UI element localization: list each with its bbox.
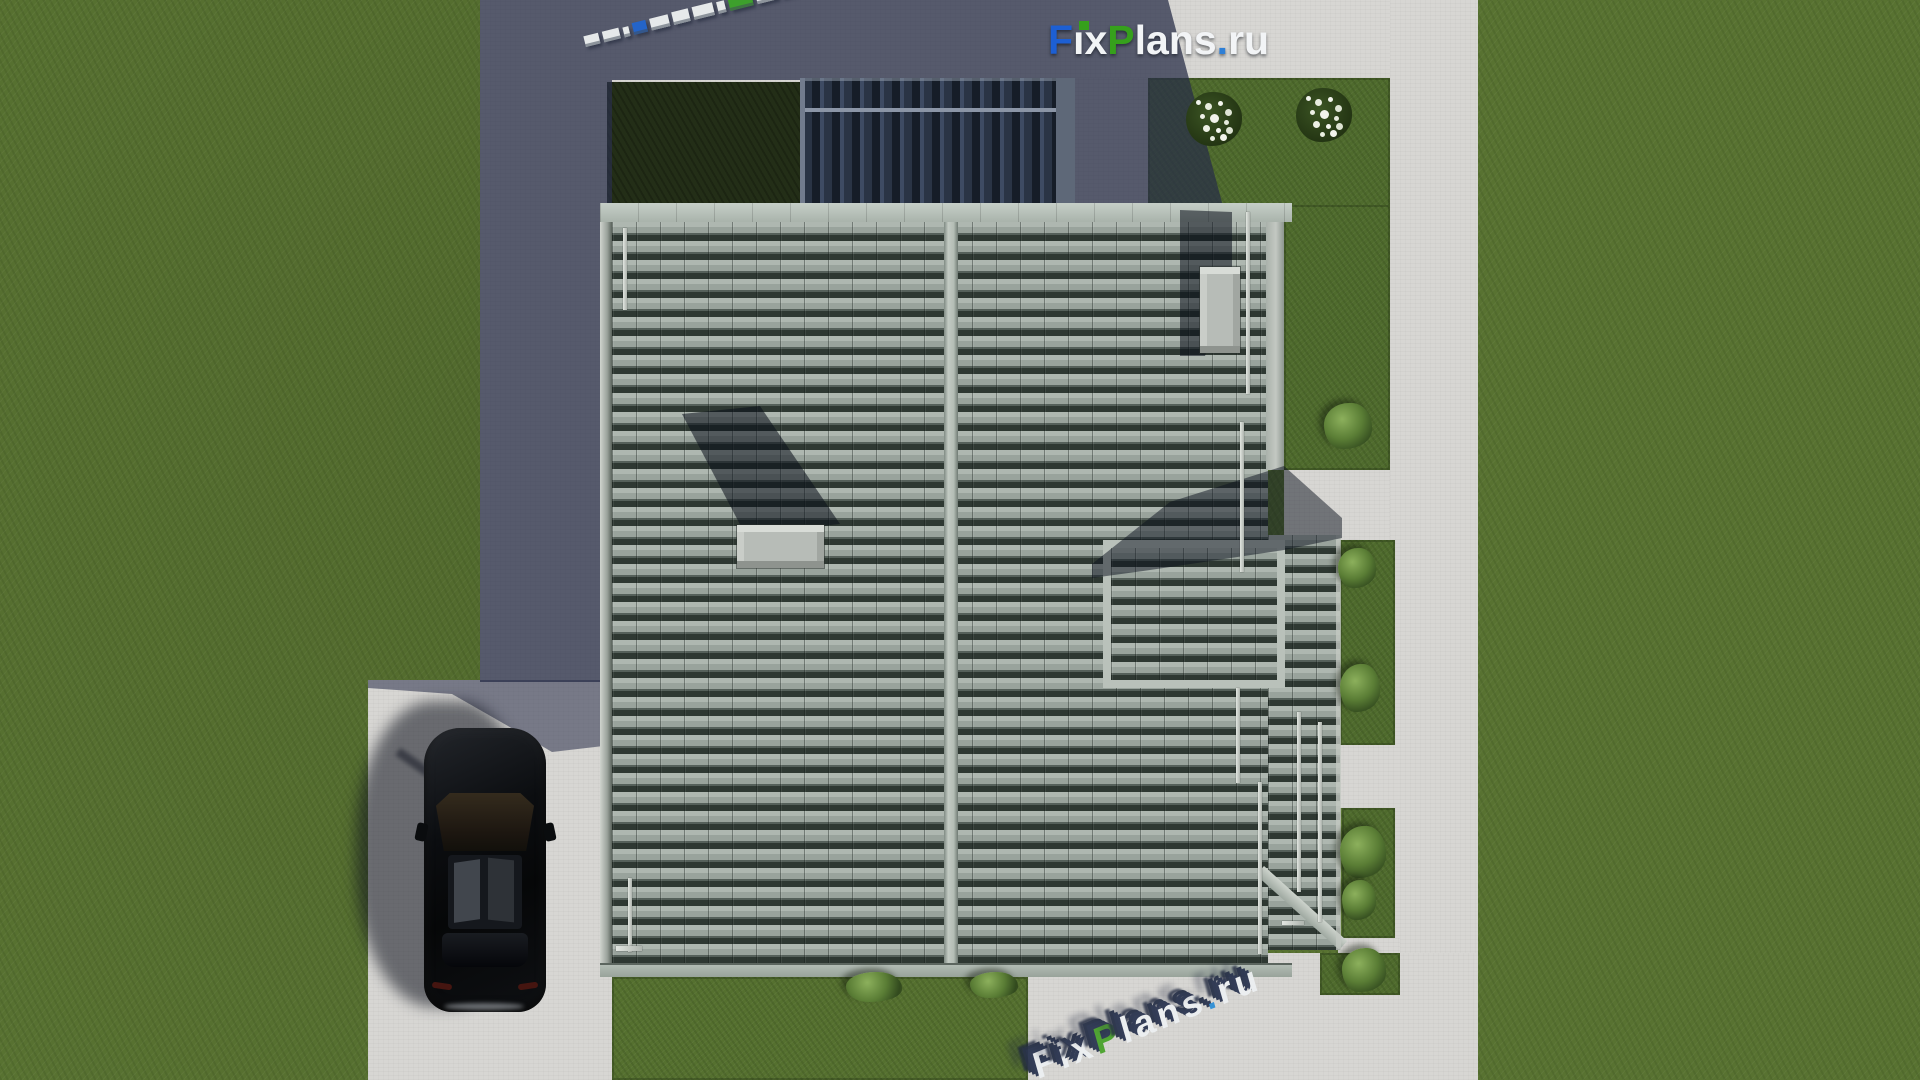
roof-top-ridge-cap [600, 203, 1292, 222]
green-bush-3 [1340, 664, 1380, 712]
car-mirror-right [542, 822, 557, 842]
parked-car [360, 695, 560, 1025]
car-windshield [436, 793, 534, 851]
green-bush-2 [1338, 548, 1376, 588]
car-front-glint [444, 1003, 524, 1010]
shaded-courtyard-grass [607, 80, 802, 207]
snow-pipe-5 [1236, 688, 1240, 783]
roof-right-trim [1266, 222, 1284, 470]
roof-center-ridge [944, 222, 958, 963]
letter-block [716, 0, 726, 13]
car-roof-glass [448, 855, 522, 929]
clerestory-right-wall [1056, 78, 1075, 205]
green-bush-6 [1342, 948, 1386, 992]
green-bush-7 [846, 972, 902, 1002]
snow-pipe-1 [628, 878, 632, 952]
text-segment: F [1048, 17, 1073, 63]
letter-block [623, 26, 631, 37]
car-taillight-right [518, 982, 539, 991]
green-bush-1 [1324, 403, 1372, 449]
text-segment: ru [1228, 17, 1269, 63]
garden-bed-top-right [1148, 78, 1390, 208]
car-body [424, 728, 546, 1012]
clerestory-left-rim [800, 78, 805, 205]
logo-i-dot [1079, 21, 1089, 30]
clerestory-roof [800, 78, 1075, 205]
text-segment: . [1217, 17, 1228, 63]
concrete-walkway-middle [1338, 745, 1397, 808]
green-bush-4 [1340, 826, 1386, 878]
car-taillight-left [432, 982, 453, 991]
concrete-strip-north-east [1068, 78, 1150, 208]
roof-left-gutter [600, 222, 612, 963]
car-roof-reflection-1 [454, 859, 480, 923]
text-segment: P [1107, 17, 1134, 63]
roof-bottom-gutter [600, 963, 1292, 977]
green-bush-5 [1342, 880, 1376, 920]
snow-pipe-9 [1282, 921, 1304, 925]
text-segment: lans [1135, 17, 1217, 63]
skylight-left [737, 525, 824, 568]
snow-pipe-7 [1297, 712, 1301, 892]
snow-pipe-8 [1318, 722, 1322, 922]
snow-pipe-2 [623, 228, 627, 310]
car-roof-reflection-2 [488, 858, 514, 923]
snow-pipe-4 [1240, 422, 1244, 572]
clerestory-mid-flashing [802, 108, 1073, 112]
parapet-roof-section [1103, 540, 1285, 688]
snow-pipe-1-cap [616, 946, 642, 951]
watermark-3d-text-bottom: FixPlans.ru [1034, 1000, 1354, 1080]
roof-extension-right-trim [1336, 535, 1341, 950]
skylight-right [1200, 267, 1240, 353]
lawn-bottom [612, 977, 1028, 1080]
concrete-walkway-upper [1284, 460, 1390, 545]
snow-pipe-6 [1258, 782, 1262, 954]
concrete-right-path [1390, 0, 1478, 1080]
render-canvas: FixPlans.ru FıxPlans.ru [0, 0, 1920, 1080]
green-bush-8 [970, 972, 1018, 998]
car-rear-window [442, 933, 528, 967]
brand-logo: FıxPlans.ru [1048, 20, 1269, 68]
snow-pipe-3 [1246, 212, 1250, 394]
concrete-left-strip [480, 0, 607, 682]
